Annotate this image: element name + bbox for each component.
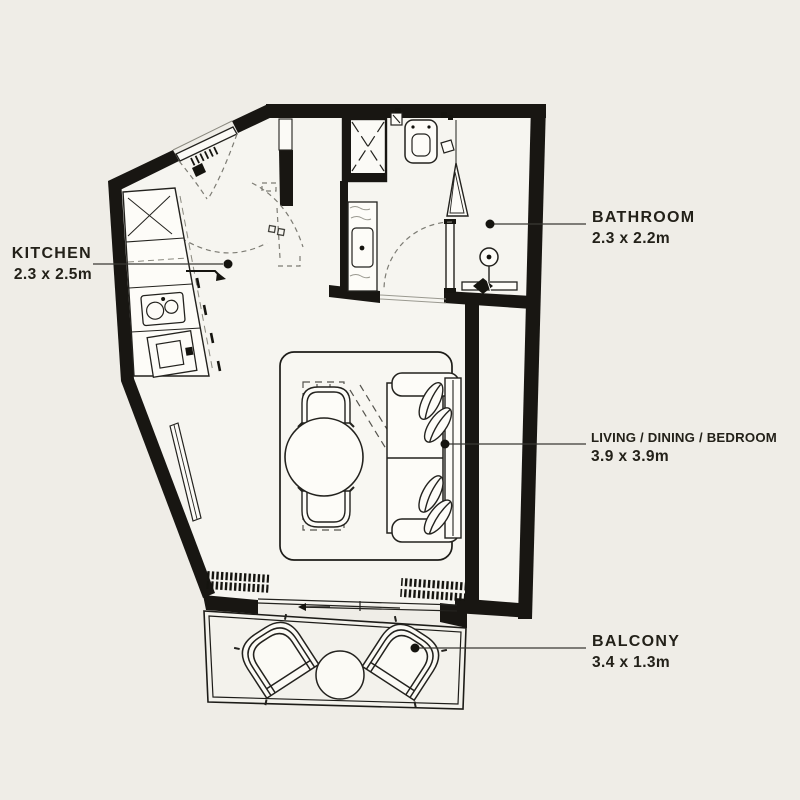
- kitchen-leader-dot: [224, 260, 233, 269]
- bathroom-label-dims: 2.3 x 2.2m: [592, 230, 695, 248]
- balcony-label: BALCONY 3.4 x 1.3m: [592, 633, 680, 672]
- wall-hook: [448, 115, 453, 120]
- kitchen-oven: [147, 331, 197, 377]
- living-label-name: LIVING / DINING / BEDROOM: [591, 430, 777, 445]
- spray-control: [441, 140, 454, 153]
- vanity-sink: [348, 202, 377, 291]
- wall-hall-stub: [279, 150, 293, 206]
- balcony-leader-dot: [411, 644, 420, 653]
- balcony-table: [316, 651, 364, 699]
- balcony-label-name: BALCONY: [592, 633, 680, 651]
- wall-hook: [441, 112, 447, 118]
- bathroom-label-name: BATHROOM: [592, 209, 695, 227]
- kitchen-label-name: KITCHEN: [12, 245, 92, 263]
- bathroom-label: BATHROOM 2.3 x 2.2m: [592, 209, 695, 248]
- wall-vanity: [340, 181, 348, 292]
- floorplan-page: KITCHEN 2.3 x 2.5m BATHROOM 2.3 x 2.2m L…: [0, 0, 800, 800]
- wall-living-right-inner: [465, 294, 479, 612]
- dining-table: [285, 418, 363, 496]
- hall-highlevel-window: [279, 119, 292, 150]
- living-label: LIVING / DINING / BEDROOM 3.9 x 3.9m: [591, 430, 777, 466]
- duct-shaft: [343, 119, 386, 181]
- kitchen-label: KITCHEN 2.3 x 2.5m: [12, 245, 92, 284]
- balcony-label-dims: 3.4 x 1.3m: [592, 654, 680, 672]
- wall-balcony-corner: [440, 603, 467, 628]
- wall-top: [266, 104, 546, 118]
- kitchen-label-dims: 2.3 x 2.5m: [12, 266, 92, 284]
- living-leader-dot: [441, 440, 450, 449]
- living-label-dims: 3.9 x 3.9m: [591, 448, 777, 466]
- floor-plan-drawing: [0, 0, 800, 800]
- bathroom-leader-dot: [486, 220, 495, 229]
- kitchen-sink: [141, 292, 185, 326]
